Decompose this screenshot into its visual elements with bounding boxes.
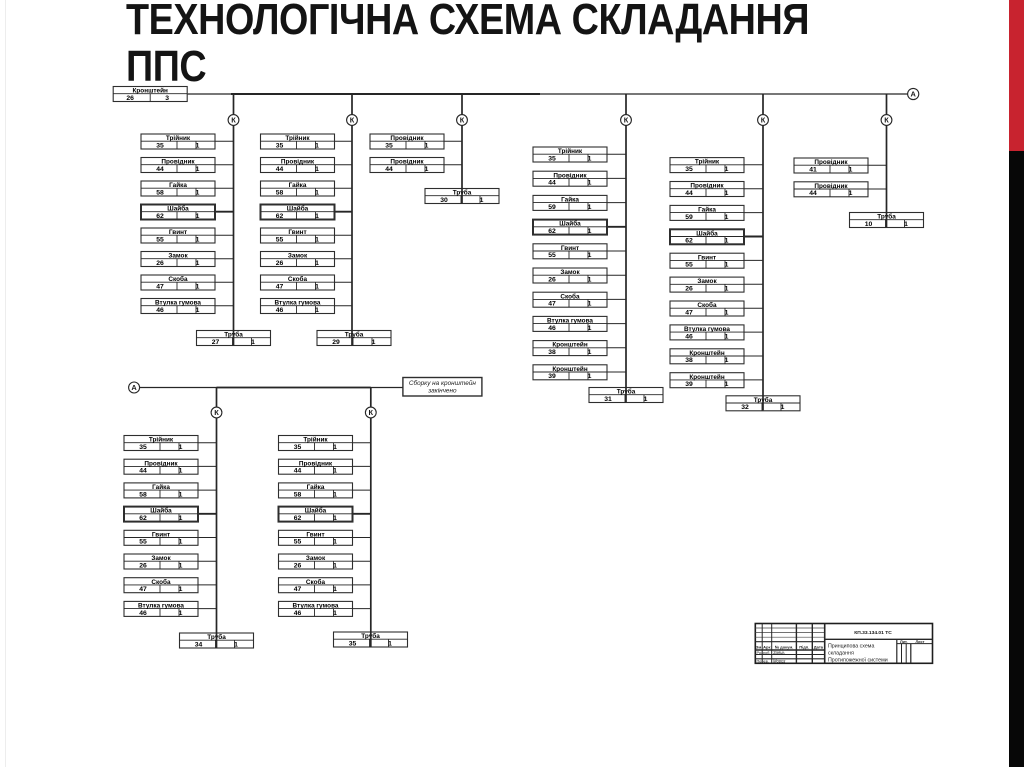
svg-text:1: 1 [315,236,319,243]
svg-text:Гвинт: Гвинт [169,229,187,236]
svg-text:62: 62 [548,228,556,235]
svg-text:Трійник: Трійник [303,436,328,444]
svg-text:Зм: Зм [756,644,762,649]
svg-text:1: 1 [196,142,200,149]
svg-text:1: 1 [725,214,729,221]
svg-text:35: 35 [385,142,393,149]
svg-text:Кронштейн: Кронштейн [689,373,725,381]
svg-text:1: 1 [425,166,429,173]
svg-text:55: 55 [548,252,556,259]
svg-text:Провідник: Провідник [814,158,848,166]
svg-text:1: 1 [849,190,853,197]
svg-text:Замок: Замок [306,555,326,562]
svg-text:44: 44 [809,190,817,197]
svg-text:46: 46 [294,610,302,617]
svg-text:47: 47 [276,283,284,290]
svg-text:1: 1 [725,190,729,197]
svg-text:26: 26 [548,276,556,283]
svg-text:Гайка: Гайка [152,483,170,491]
svg-text:Втулка гумова: Втулка гумова [138,603,184,610]
svg-text:1: 1 [725,357,729,364]
svg-text:1: 1 [196,307,200,314]
svg-text:Протипожежної системи: Протипожежної системи [828,658,888,664]
svg-text:26: 26 [276,260,284,267]
svg-text:Гайка: Гайка [561,196,579,204]
svg-text:Гвинт: Гвинт [306,531,324,538]
svg-text:Провідник: Провідник [553,171,587,179]
svg-text:26: 26 [156,260,164,267]
svg-text:46: 46 [139,610,147,617]
svg-text:62: 62 [685,238,693,245]
svg-text:Труба: Труба [345,331,364,339]
svg-text:29: 29 [332,339,340,346]
svg-text:Провідник: Провідник [161,158,195,166]
svg-text:Провідник: Провідник [144,459,178,467]
svg-text:55: 55 [685,262,693,269]
svg-text:1: 1 [315,213,319,220]
svg-text:35: 35 [685,166,693,173]
svg-text:Скоба: Скоба [306,578,326,586]
svg-text:1: 1 [725,381,729,388]
svg-text:55: 55 [139,539,147,546]
svg-text:Втулка гумова: Втулка гумова [547,318,593,325]
svg-text:1: 1 [179,515,183,522]
svg-text:Кронштейн: Кронштейн [133,87,169,95]
svg-text:Втулка гумова: Втулка гумова [155,300,201,307]
svg-text:1: 1 [179,444,183,451]
svg-text:1: 1 [904,221,908,228]
svg-text:26: 26 [139,562,147,569]
svg-text:1: 1 [480,197,484,204]
svg-text:47: 47 [685,309,693,316]
svg-text:1: 1 [725,333,729,340]
svg-text:Перев.: Перев. [757,658,769,663]
svg-text:К: К [624,116,629,125]
svg-text:Скоба: Скоба [151,578,171,586]
svg-text:Шайба: Шайба [305,507,327,515]
svg-text:62: 62 [156,213,164,220]
svg-text:1: 1 [725,286,729,293]
svg-text:Розроб.: Розроб. [757,650,771,655]
svg-text:Гвинт: Гвинт [288,229,306,236]
svg-text:32: 32 [741,404,749,411]
svg-text:39: 39 [548,373,556,380]
svg-text:44: 44 [156,166,164,173]
svg-text:1: 1 [333,515,337,522]
svg-text:46: 46 [685,333,693,340]
svg-text:Замок: Замок [697,278,717,285]
svg-text:1: 1 [725,262,729,269]
svg-text:Гвинт: Гвинт [152,531,170,538]
svg-text:1: 1 [179,491,183,498]
svg-text:Провідник: Провідник [390,134,424,142]
svg-text:Лит.: Лит. [900,640,908,644]
svg-text:58: 58 [139,491,147,498]
svg-text:58: 58 [156,189,164,196]
svg-text:1: 1 [179,586,183,593]
svg-text:Трійник: Трійник [166,134,191,142]
svg-text:34: 34 [195,641,203,648]
svg-text:1: 1 [588,373,592,380]
svg-text:31: 31 [604,396,612,403]
svg-text:К: К [350,116,355,125]
svg-text:1: 1 [333,610,337,617]
svg-text:39: 39 [685,381,693,388]
svg-text:1: 1 [372,339,376,346]
svg-text:26: 26 [685,286,693,293]
svg-text:К: К [460,116,465,125]
svg-text:Шайба: Шайба [287,205,309,213]
svg-text:1: 1 [588,349,592,356]
svg-text:Замок: Замок [151,555,171,562]
svg-text:Принципова схема: Принципова схема [828,643,874,649]
svg-text:1: 1 [588,325,592,332]
svg-text:1: 1 [781,404,785,411]
svg-text:Заяць: Заяць [773,650,785,655]
svg-text:35: 35 [139,444,147,451]
svg-text:47: 47 [156,283,164,290]
svg-text:1: 1 [333,562,337,569]
svg-text:1: 1 [725,166,729,173]
svg-text:1: 1 [588,204,592,211]
svg-text:26: 26 [126,95,134,102]
svg-text:1: 1 [179,468,183,475]
svg-text:Провідник: Провідник [299,459,333,467]
svg-text:1: 1 [425,142,429,149]
svg-text:Втулка гумова: Втулка гумова [293,603,339,610]
svg-text:Скоба: Скоба [288,275,308,283]
svg-text:58: 58 [294,491,302,498]
svg-text:КП.33.134.01 ТС: КП.33.134.01 ТС [854,630,892,636]
svg-text:К: К [369,408,374,417]
svg-text:1: 1 [588,252,592,259]
svg-text:1: 1 [333,491,337,498]
svg-text:1: 1 [179,610,183,617]
svg-text:складання: складання [828,650,854,656]
svg-text:55: 55 [276,236,284,243]
svg-text:44: 44 [548,180,556,187]
svg-text:1: 1 [196,236,200,243]
svg-text:1: 1 [196,260,200,267]
svg-text:Гвинт: Гвинт [561,245,579,252]
svg-text:Гвинт: Гвинт [698,254,716,261]
svg-text:59: 59 [548,204,556,211]
svg-text:46: 46 [548,325,556,332]
svg-text:К: К [884,116,889,125]
svg-text:1: 1 [588,180,592,187]
svg-text:Дата: Дата [814,644,824,649]
svg-text:55: 55 [156,236,164,243]
svg-text:44: 44 [139,468,147,475]
svg-text:1: 1 [333,444,337,451]
svg-text:35: 35 [349,640,357,647]
svg-text:Мороз: Мороз [773,658,785,663]
svg-text:26: 26 [294,562,302,569]
svg-text:46: 46 [276,307,284,314]
svg-text:1: 1 [234,641,238,648]
svg-text:Гайка: Гайка [698,206,716,214]
svg-text:Трійник: Трійник [285,134,310,142]
svg-text:Трійник: Трійник [149,436,174,444]
svg-text:10: 10 [865,221,873,228]
svg-text:Скоба: Скоба [560,292,580,300]
svg-text:Гайка: Гайка [307,483,325,491]
svg-text:1: 1 [179,562,183,569]
svg-text:Сборку на кронштейн: Сборку на кронштейн [409,379,477,387]
svg-text:62: 62 [294,515,302,522]
svg-text:35: 35 [548,155,556,162]
svg-text:47: 47 [548,301,556,308]
svg-text:Скоба: Скоба [697,301,717,309]
svg-text:Кронштейн: Кронштейн [689,349,725,357]
svg-text:1: 1 [251,339,255,346]
svg-text:44: 44 [276,166,284,173]
svg-text:1: 1 [196,213,200,220]
svg-text:1: 1 [588,155,592,162]
svg-text:Трійник: Трійник [695,158,720,166]
svg-text:30: 30 [440,197,448,204]
svg-text:А: А [131,383,137,392]
svg-text:Замок: Замок [288,253,308,260]
svg-text:44: 44 [385,166,393,173]
svg-text:38: 38 [548,349,556,356]
svg-text:Шайба: Шайба [167,205,189,213]
svg-text:62: 62 [276,213,284,220]
svg-text:59: 59 [685,214,693,221]
svg-text:Гайка: Гайка [169,181,187,189]
svg-text:1: 1 [333,586,337,593]
svg-text:35: 35 [156,142,164,149]
svg-text:закінчено: закінчено [427,387,457,395]
svg-text:Втулка гумова: Втулка гумова [684,326,730,333]
svg-text:46: 46 [156,307,164,314]
svg-text:Провідник: Провідник [281,158,315,166]
svg-text:58: 58 [276,189,284,196]
svg-text:Арк: Арк [763,644,770,649]
svg-text:1: 1 [179,539,183,546]
svg-text:41: 41 [809,166,817,173]
svg-text:1: 1 [315,283,319,290]
svg-text:1: 1 [588,276,592,283]
svg-text:47: 47 [294,586,302,593]
svg-text:44: 44 [294,468,302,475]
svg-text:Провідник: Провідник [814,182,848,190]
svg-text:Замок: Замок [168,253,188,260]
svg-text:Шайба: Шайба [696,229,718,237]
svg-text:1: 1 [333,468,337,475]
svg-text:1: 1 [315,142,319,149]
svg-text:К: К [231,116,236,125]
svg-text:35: 35 [294,444,302,451]
svg-text:Лист: Лист [916,640,925,644]
svg-text:1: 1 [725,309,729,316]
svg-text:Шайба: Шайба [150,507,172,515]
svg-text:1: 1 [315,307,319,314]
svg-text:№ докум.: № докум. [775,644,794,649]
svg-text:1: 1 [315,166,319,173]
svg-text:1: 1 [333,539,337,546]
svg-text:35: 35 [276,142,284,149]
svg-text:1: 1 [644,396,648,403]
svg-text:1: 1 [196,166,200,173]
svg-text:27: 27 [212,339,220,346]
svg-text:К: К [214,408,219,417]
svg-text:А: А [911,90,917,99]
svg-text:Провідник: Провідник [390,158,424,166]
svg-text:К: К [761,116,766,125]
svg-text:Кронштейн: Кронштейн [552,365,588,373]
svg-text:1: 1 [588,228,592,235]
svg-text:Замок: Замок [560,269,580,276]
svg-text:1: 1 [315,260,319,267]
svg-text:47: 47 [139,586,147,593]
svg-text:55: 55 [294,539,302,546]
svg-text:1: 1 [196,283,200,290]
svg-text:Підп.: Підп. [799,644,809,649]
svg-text:1: 1 [588,301,592,308]
svg-text:Гайка: Гайка [289,181,307,189]
svg-text:Скоба: Скоба [168,275,188,283]
svg-text:38: 38 [685,357,693,364]
svg-text:1: 1 [849,166,853,173]
svg-text:Провідник: Провідник [690,182,724,190]
svg-text:1: 1 [388,640,392,647]
svg-text:1: 1 [315,189,319,196]
svg-text:Трійник: Трійник [558,147,583,155]
svg-text:1: 1 [725,238,729,245]
svg-text:3: 3 [165,95,169,102]
svg-text:Кронштейн: Кронштейн [552,341,588,349]
svg-text:44: 44 [685,190,693,197]
svg-text:1: 1 [196,189,200,196]
svg-text:Втулка гумова: Втулка гумова [275,300,321,307]
svg-text:Шайба: Шайба [559,220,581,228]
svg-text:62: 62 [139,515,147,522]
